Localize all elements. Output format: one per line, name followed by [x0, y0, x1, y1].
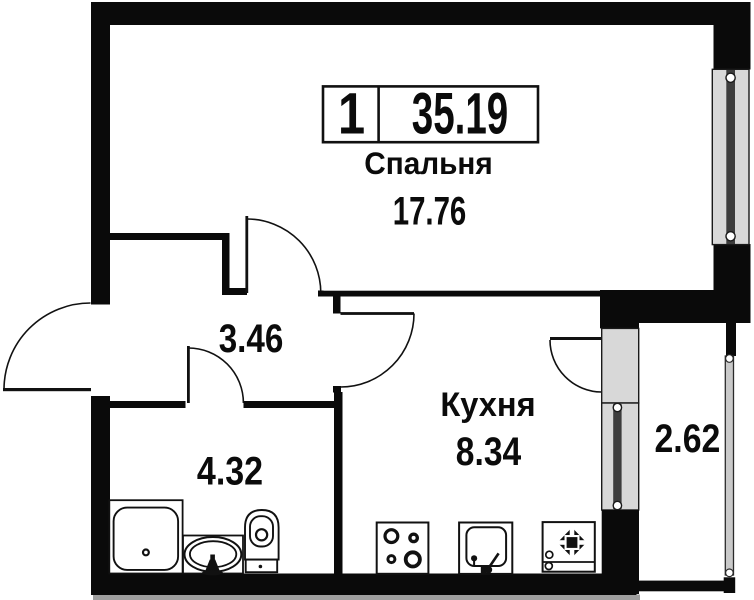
svg-text:1: 1 — [338, 83, 365, 147]
svg-text:3.46: 3.46 — [219, 316, 284, 361]
svg-text:Спальня: Спальня — [364, 146, 493, 181]
svg-text:Кухня: Кухня — [440, 386, 535, 424]
svg-text:4.32: 4.32 — [197, 448, 263, 493]
svg-text:2.62: 2.62 — [654, 415, 720, 460]
svg-text:35.19: 35.19 — [412, 82, 509, 147]
svg-text:17.76: 17.76 — [393, 189, 467, 233]
svg-text:8.34: 8.34 — [456, 429, 522, 473]
